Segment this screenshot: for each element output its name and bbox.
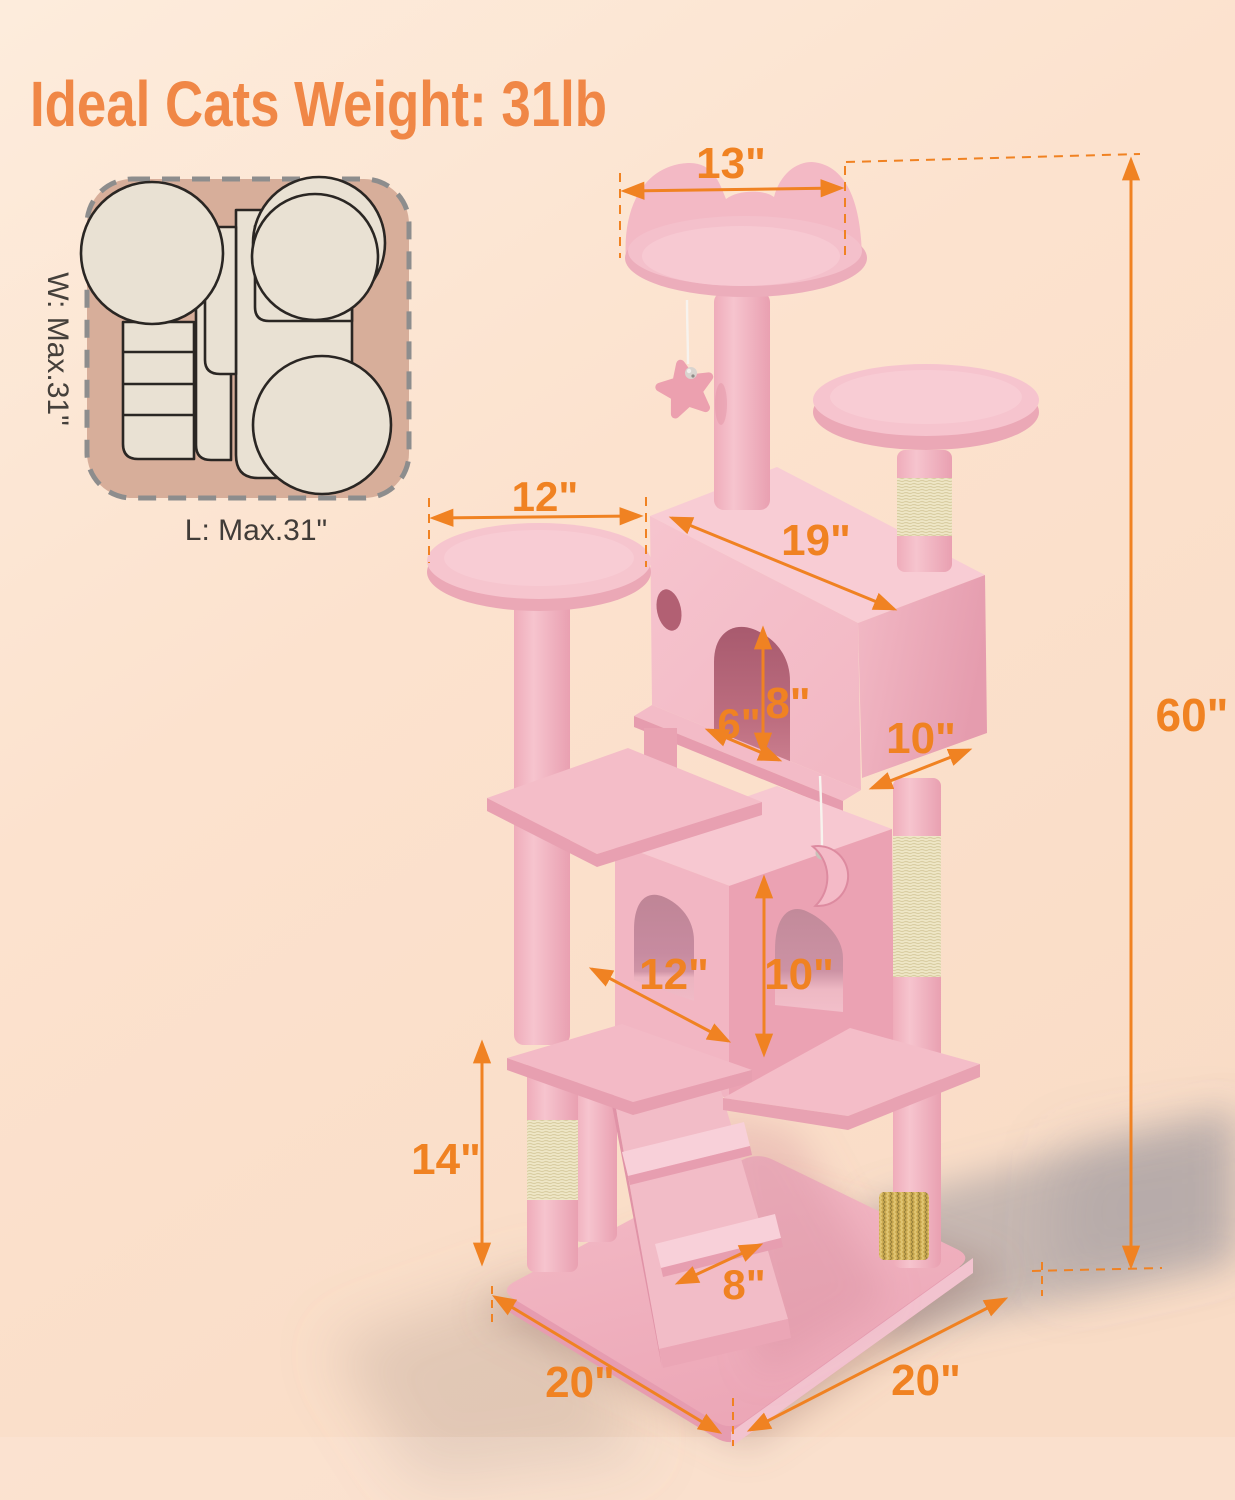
svg-text:20": 20" bbox=[891, 1356, 961, 1405]
svg-text:10": 10" bbox=[886, 714, 956, 763]
svg-text:12": 12" bbox=[639, 950, 709, 999]
svg-text:L: Max.31": L: Max.31" bbox=[185, 514, 327, 547]
svg-text:60": 60" bbox=[1156, 689, 1229, 741]
svg-text:Ideal Cats Weight: 31lb: Ideal Cats Weight: 31lb bbox=[30, 68, 607, 140]
svg-text:10": 10" bbox=[764, 950, 834, 999]
svg-text:20": 20" bbox=[545, 1358, 615, 1407]
svg-text:8": 8" bbox=[765, 679, 810, 728]
svg-text:W: Max.31": W: Max.31" bbox=[41, 272, 74, 425]
svg-text:12": 12" bbox=[512, 473, 579, 520]
svg-text:6": 6" bbox=[717, 700, 760, 747]
svg-text:13": 13" bbox=[696, 139, 766, 188]
svg-text:8": 8" bbox=[722, 1261, 765, 1308]
svg-text:19": 19" bbox=[781, 516, 851, 565]
svg-text:14": 14" bbox=[411, 1135, 481, 1184]
